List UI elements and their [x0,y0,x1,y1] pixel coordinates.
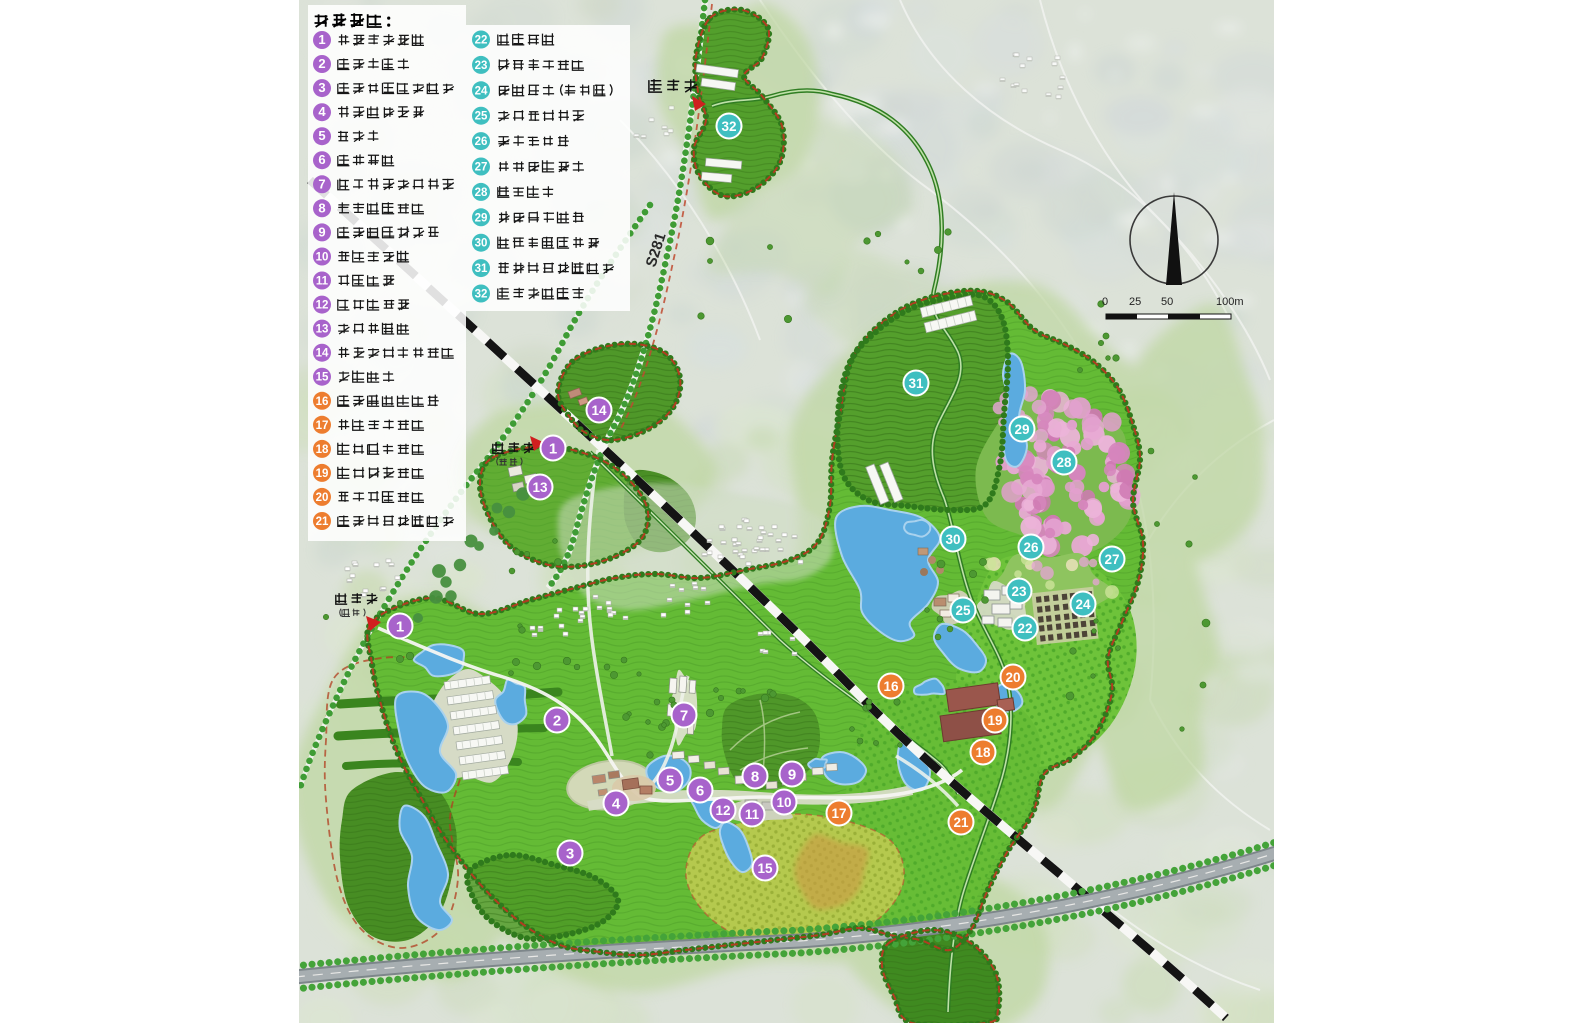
svg-text:14: 14 [316,348,329,360]
svg-text:19: 19 [316,468,329,480]
svg-text:20: 20 [316,492,329,504]
svg-text:1: 1 [396,618,404,635]
svg-text:25: 25 [1129,296,1141,308]
svg-text:17: 17 [316,420,329,432]
svg-text:32: 32 [475,289,488,301]
svg-text:23: 23 [1011,584,1027,599]
svg-text:3: 3 [566,845,574,862]
svg-text:11: 11 [316,276,329,288]
svg-text:16: 16 [316,396,329,408]
svg-text:100m: 100m [1216,296,1244,308]
svg-text:28: 28 [1056,455,1072,470]
svg-text:10: 10 [316,252,329,264]
svg-text:3: 3 [318,80,325,95]
svg-text:26: 26 [1023,540,1039,555]
svg-text:26: 26 [475,136,488,148]
svg-text:10: 10 [776,795,791,810]
svg-text:30: 30 [475,238,488,250]
svg-text:14: 14 [591,403,607,418]
svg-text:28: 28 [475,187,488,199]
svg-text:16: 16 [883,679,899,694]
svg-text:25: 25 [475,111,488,123]
svg-text:21: 21 [953,815,969,830]
svg-text:9: 9 [318,224,325,239]
svg-text:4: 4 [612,795,621,812]
svg-text:6: 6 [318,152,325,167]
svg-text:29: 29 [1014,422,1029,437]
svg-text:27: 27 [1104,552,1119,567]
svg-text:13: 13 [316,324,329,336]
svg-text:6: 6 [696,782,704,799]
svg-text:25: 25 [955,603,971,618]
svg-text:15: 15 [757,861,773,876]
svg-text:13: 13 [532,480,548,495]
svg-text:4: 4 [318,104,326,119]
svg-text:20: 20 [1005,670,1020,685]
svg-text:5: 5 [666,772,674,789]
svg-text:27: 27 [475,162,488,174]
svg-text:11: 11 [745,807,760,822]
svg-text:23: 23 [475,60,488,72]
svg-text:1: 1 [318,32,325,47]
svg-text:15: 15 [316,372,329,384]
svg-text:31: 31 [908,376,924,391]
svg-text:30: 30 [945,532,960,547]
svg-text:21: 21 [316,516,329,528]
svg-text:8: 8 [318,200,325,215]
svg-text:1: 1 [549,440,557,457]
svg-text:5: 5 [318,128,325,143]
svg-text:19: 19 [987,713,1002,728]
svg-text:12: 12 [316,300,329,312]
svg-text:29: 29 [475,212,488,224]
svg-text:22: 22 [475,35,488,47]
svg-text:50: 50 [1161,296,1173,308]
svg-text:17: 17 [831,806,846,821]
svg-text:8: 8 [751,768,759,785]
svg-text:2: 2 [318,56,325,71]
svg-text:12: 12 [715,803,730,818]
svg-text:24: 24 [1075,597,1091,612]
svg-text:9: 9 [788,766,796,783]
svg-text:32: 32 [721,119,736,134]
svg-text:0: 0 [1102,296,1108,308]
svg-text:7: 7 [680,707,688,724]
svg-text:18: 18 [975,745,991,760]
svg-text:2: 2 [553,712,561,729]
svg-text:24: 24 [475,85,488,97]
svg-text:18: 18 [316,444,329,456]
svg-text:22: 22 [1017,621,1032,636]
svg-text:31: 31 [475,263,488,275]
svg-text:7: 7 [318,176,325,191]
